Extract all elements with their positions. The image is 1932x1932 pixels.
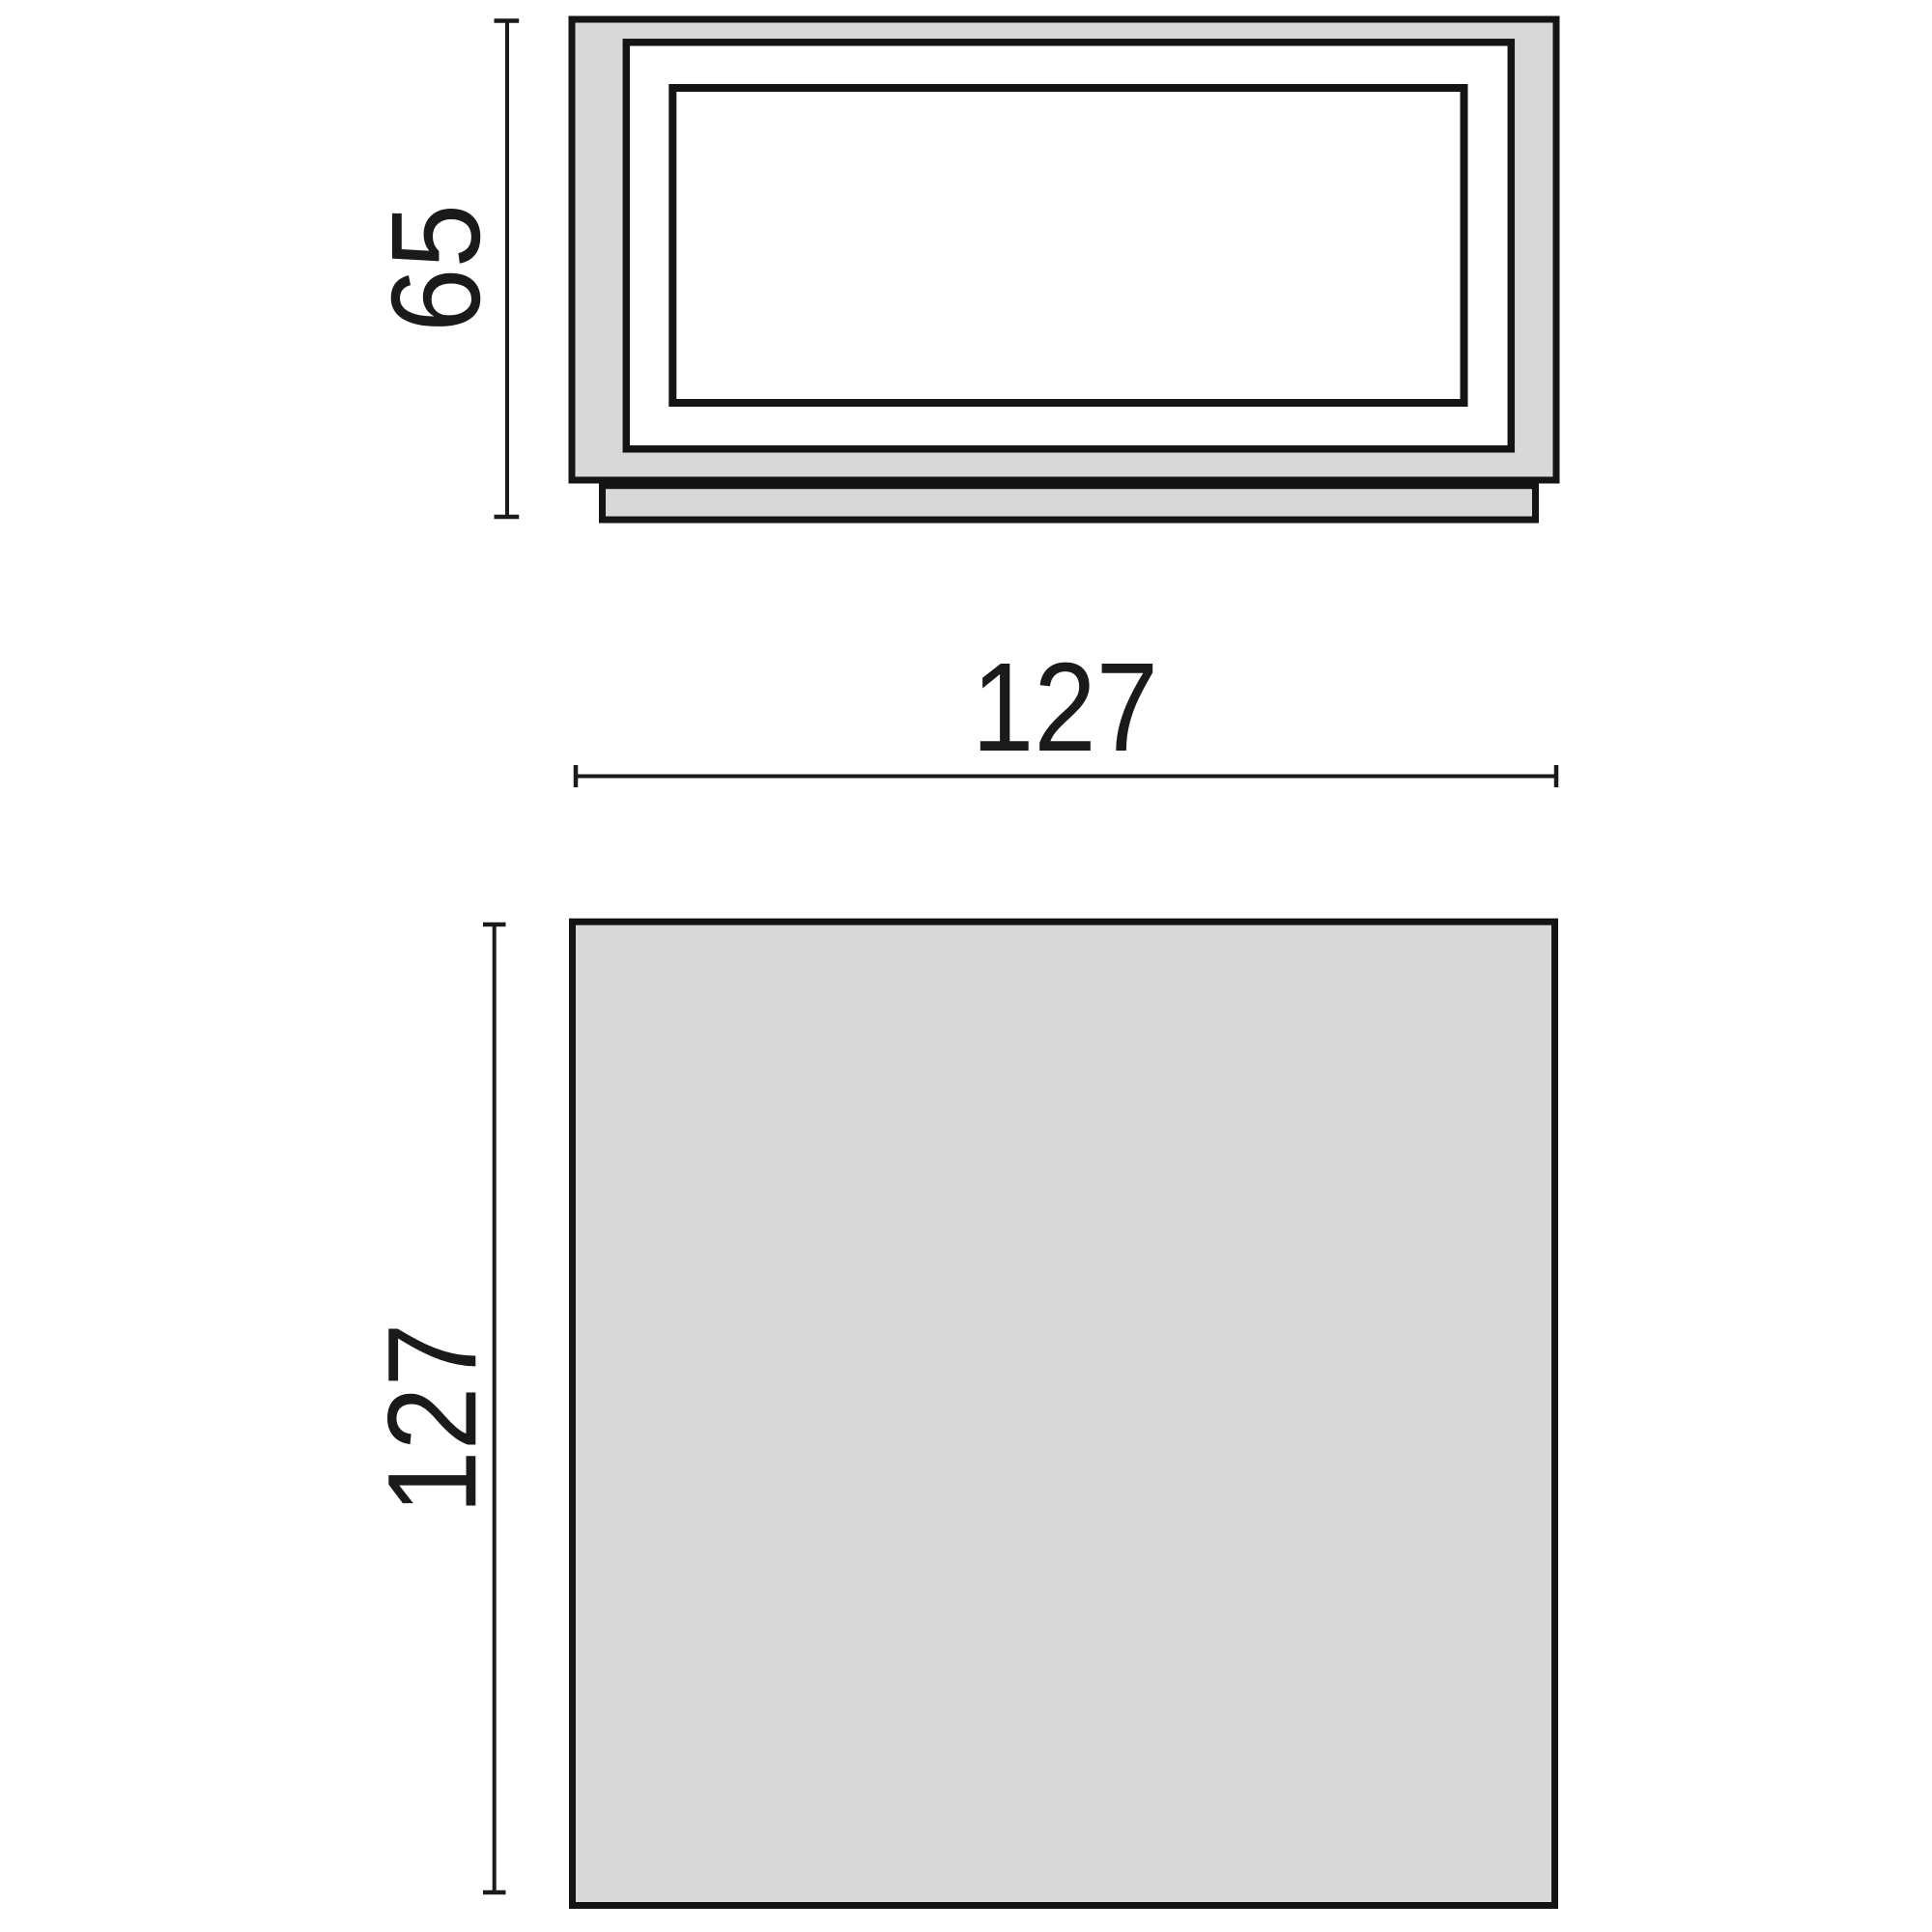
svg-text:127: 127: [361, 1323, 502, 1515]
svg-text:65: 65: [365, 204, 506, 332]
svg-text:127: 127: [972, 637, 1158, 778]
